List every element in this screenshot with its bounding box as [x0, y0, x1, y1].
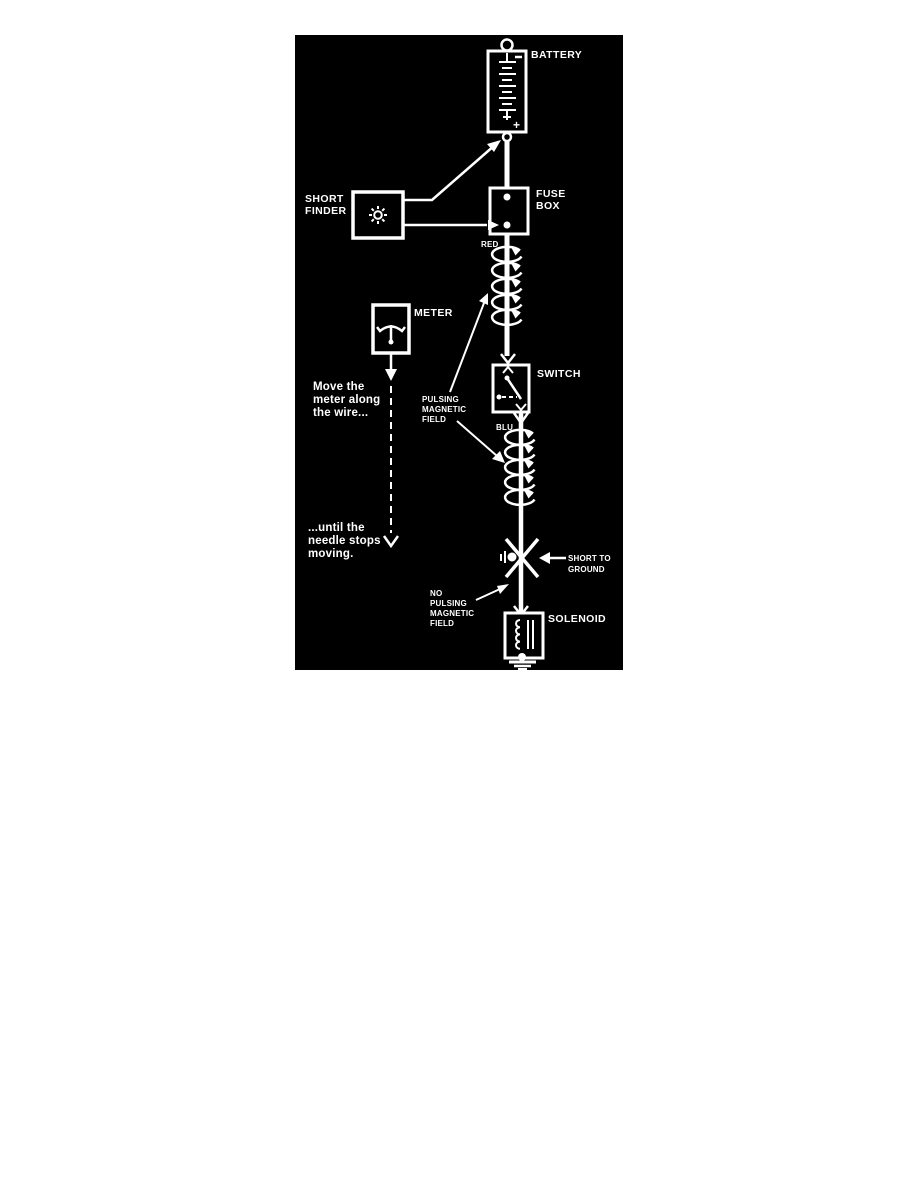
solenoid-symbol: <533> — [505, 613, 543, 658]
svg-text:SHORT TO: SHORT TO — [568, 554, 611, 563]
short-finder-diagram: + BATTERY FUSE BOX SHORT FINDER — [0, 0, 918, 1188]
svg-text:the wire...: the wire... — [313, 407, 368, 419]
switch-symbol — [493, 365, 529, 412]
ground-contact-dot — [508, 553, 517, 562]
battery-plus-mark: + — [513, 118, 520, 132]
svg-text:FIELD: FIELD — [430, 619, 454, 628]
svg-text:MAGNETIC: MAGNETIC — [422, 405, 466, 414]
meter-label: METER — [414, 307, 453, 319]
svg-text:Move the: Move the — [313, 381, 364, 393]
figure-panel — [295, 35, 623, 670]
short-finder-label-line2: FINDER — [305, 205, 346, 217]
svg-text:...until the: ...until the — [308, 522, 365, 534]
short-finder-label-line1: SHORT — [305, 193, 344, 205]
svg-text:FIELD: FIELD — [422, 415, 446, 424]
fuse-box-label-line2: BOX — [536, 200, 560, 212]
battery-symbol: + — [488, 40, 526, 133]
svg-text:MAGNETIC: MAGNETIC — [430, 609, 474, 618]
short-finder-box — [353, 192, 403, 238]
solenoid-label: SOLENOID — [548, 613, 606, 625]
svg-text:PULSING: PULSING — [422, 395, 459, 404]
probe-junction-dot — [503, 133, 511, 141]
wire-red-label: RED — [481, 240, 499, 249]
svg-text:moving.: moving. — [308, 548, 354, 560]
svg-text:needle stops: needle stops — [308, 535, 381, 547]
svg-text:NO: NO — [430, 589, 442, 598]
document-page: + BATTERY FUSE BOX SHORT FINDER — [0, 0, 918, 1188]
svg-text:meter along: meter along — [313, 394, 380, 406]
switch-label: SWITCH — [537, 368, 581, 380]
fuse-box-symbol — [490, 188, 528, 234]
svg-text:PULSING: PULSING — [430, 599, 467, 608]
meter-symbol — [373, 305, 409, 353]
fuse-box-label-line1: FUSE — [536, 188, 566, 200]
svg-text:GROUND: GROUND — [568, 565, 605, 574]
battery-label: BATTERY — [531, 49, 582, 61]
